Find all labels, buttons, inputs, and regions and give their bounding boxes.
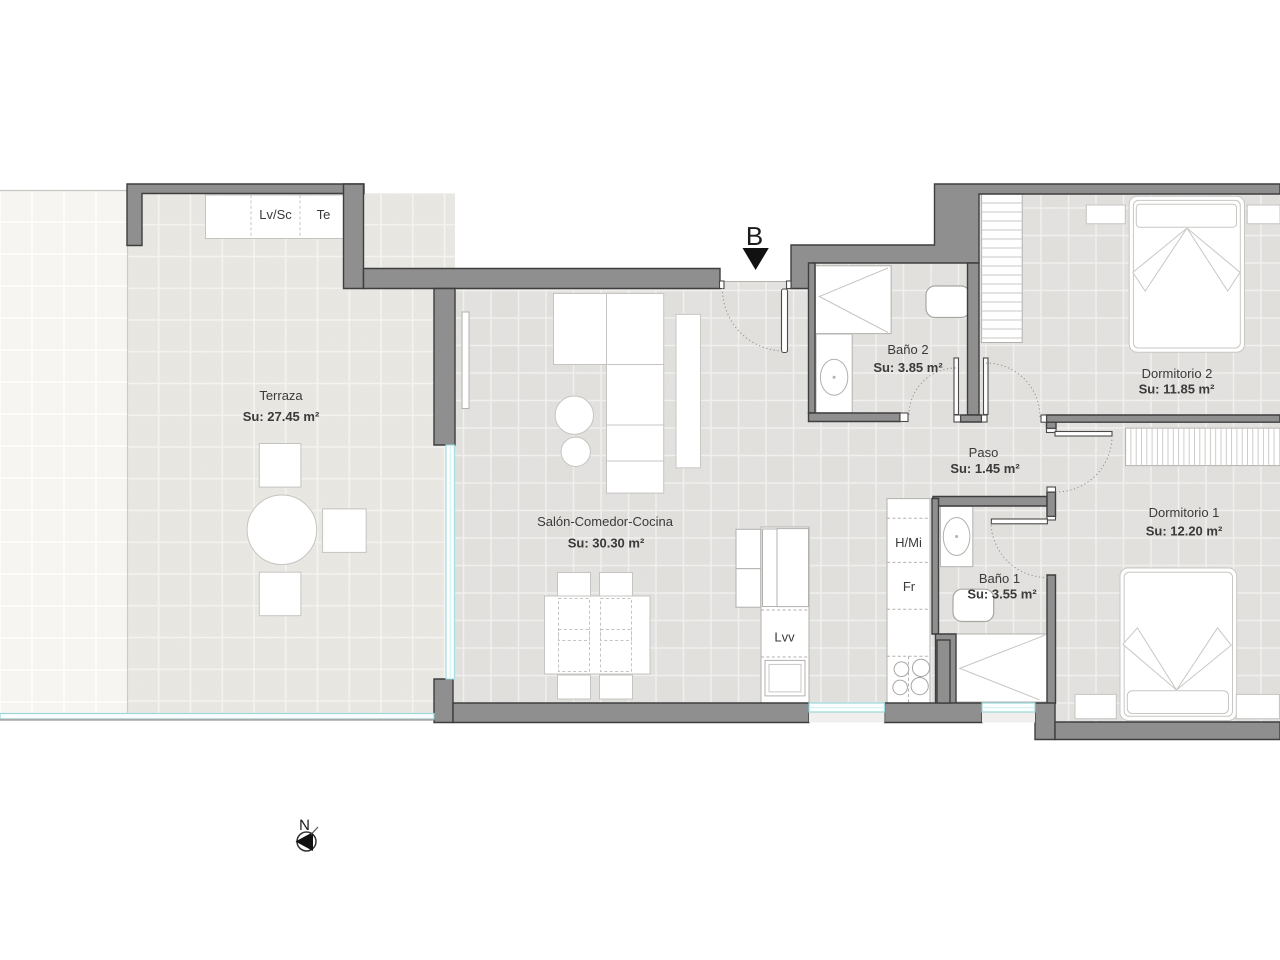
- svg-text:Terraza: Terraza: [259, 388, 303, 403]
- svg-text:Salón-Comedor-Cocina: Salón-Comedor-Cocina: [537, 514, 674, 529]
- svg-text:Dormitorio 1: Dormitorio 1: [1149, 505, 1220, 520]
- svg-text:Baño 1: Baño 1: [979, 571, 1020, 586]
- svg-text:Lvv: Lvv: [774, 630, 795, 645]
- svg-text:Su: 3.85 m²: Su: 3.85 m²: [873, 360, 943, 375]
- svg-text:Baño 2: Baño 2: [887, 342, 928, 357]
- svg-text:Te: Te: [317, 207, 331, 222]
- svg-text:Su: 30.30 m²: Su: 30.30 m²: [568, 536, 645, 551]
- svg-text:Su: 1.45 m²: Su: 1.45 m²: [950, 461, 1020, 476]
- svg-text:Fr: Fr: [903, 579, 916, 594]
- svg-text:Su: 12.20 m²: Su: 12.20 m²: [1146, 524, 1223, 539]
- svg-text:Su: 11.85 m²: Su: 11.85 m²: [1139, 382, 1216, 397]
- svg-text:Dormitorio 2: Dormitorio 2: [1142, 366, 1213, 381]
- svg-text:Lv/Sc: Lv/Sc: [259, 207, 292, 222]
- svg-text:Paso: Paso: [969, 445, 999, 460]
- svg-text:Su: 3.55 m²: Su: 3.55 m²: [967, 587, 1037, 602]
- svg-text:H/Mi: H/Mi: [895, 535, 922, 550]
- svg-text:Su: 27.45 m²: Su: 27.45 m²: [243, 409, 320, 424]
